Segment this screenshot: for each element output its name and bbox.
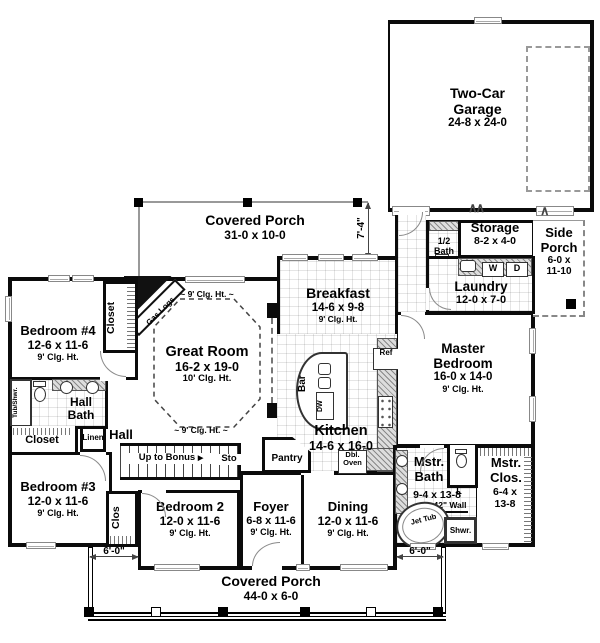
- washer: W: [482, 262, 504, 277]
- breakfast-window: [318, 254, 344, 261]
- porch-depth-dimension-line: [368, 203, 369, 259]
- stairs-storage-label: Sto: [217, 454, 241, 465]
- jet-tub-inner: [398, 503, 447, 547]
- shower-label: Shwr.: [447, 527, 474, 536]
- squiggle-icon: ~: [229, 289, 234, 299]
- foyer-name: Foyer: [240, 500, 302, 515]
- porch-top-name: Covered Porch: [155, 213, 355, 229]
- dining-clg: 9' Clg. Ht.: [302, 528, 394, 538]
- great-room-clg: 10' Clg. Ht.: [151, 374, 263, 385]
- bar-label: Bar: [297, 362, 313, 406]
- master-bedroom-clg: 9' Clg. Ht.: [414, 384, 512, 394]
- half-bath-vanity: [429, 221, 459, 231]
- garage-attic-dashed-outline: [526, 46, 590, 192]
- porch-top-label: Covered Porch 31-0 x 10-0: [155, 213, 355, 242]
- master-bedroom-window: [529, 396, 536, 422]
- floor-plan: Two-Car Garage 24-8 x 24-0 ∧∧ ∧ Covered …: [0, 0, 600, 643]
- porch-depth-dimension: 7'-4": [356, 208, 368, 248]
- breakfast-name: Breakfast: [288, 286, 388, 302]
- great-room-dims: 16-2 x 19-0: [151, 360, 263, 374]
- bedroom2-clg: 9' Clg. Ht.: [144, 528, 236, 538]
- bedroom3-clg: 9' Clg. Ht.: [12, 508, 104, 518]
- wall-opening: [252, 566, 282, 570]
- porch-post: [243, 198, 252, 207]
- ceiling-note-text: 9' Clg. Ht.: [182, 425, 221, 435]
- breakfast-dims: 14-6 x 9-8: [288, 302, 388, 315]
- washer-label: W: [483, 263, 503, 273]
- ceiling-note: ~ 9' Clg. Ht. ~: [156, 426, 246, 436]
- side-porch-post: [566, 299, 576, 309]
- refrigerator-label: Ref: [374, 349, 398, 358]
- porch-bottom-name: Covered Porch: [190, 574, 352, 590]
- bedroom3-window: [26, 542, 56, 549]
- bedroom3-closet-label: Closet: [10, 434, 74, 446]
- double-oven-label: Dbl. Oven: [339, 451, 366, 467]
- garage-window: [474, 17, 502, 24]
- dryer: D: [506, 262, 528, 277]
- squiggle-icon: ~: [174, 425, 179, 435]
- master-closet-label: Mstr. Clos.: [481, 456, 531, 485]
- porch-post: [134, 198, 143, 207]
- up-to-bonus-text: Up to Bonus: [139, 452, 195, 463]
- storage-name: Storage: [456, 221, 534, 236]
- wall-segment: [395, 215, 398, 261]
- tub-shower-label: Tub/Shwr.: [12, 381, 30, 425]
- porch-rail-bottom: [88, 612, 446, 621]
- stairs-up-label: Up to Bonus ▶: [128, 453, 214, 464]
- gas-logs-label: Gas Logs: [144, 295, 176, 327]
- master-bedroom-window: [529, 328, 536, 354]
- pantry-label: Pantry: [264, 453, 310, 464]
- squiggle-icon: ~: [223, 425, 228, 435]
- toilet-icon: [34, 387, 46, 402]
- porch-post: [218, 607, 228, 617]
- bedroom3-dims: 12-0 x 11-6: [12, 495, 104, 508]
- side-porch-label: Side Porch 6-0 x 11-10: [535, 226, 583, 277]
- door-swing-icon: ∧∧: [468, 200, 483, 216]
- bedroom4-dims: 12-6 x 11-6: [13, 339, 103, 352]
- kitchen-name: Kitchen: [292, 423, 390, 439]
- great-room-name: Great Room: [151, 344, 263, 360]
- cased-opening-dashed: [271, 318, 273, 403]
- breakfast-clg: 9' Clg. Ht.: [288, 315, 388, 325]
- column-post: [267, 403, 277, 418]
- porch-bottom-label: Covered Porch 44-0 x 6-0: [190, 574, 352, 603]
- foyer-label: Foyer 6-8 x 11-6 9' Clg. Ht.: [240, 500, 302, 537]
- foyer-dims: 6-8 x 11-6: [240, 515, 302, 527]
- great-room-label: Great Room 16-2 x 19-0 10' Clg. Ht.: [151, 344, 263, 385]
- garage-name: Two-Car Garage: [430, 86, 525, 117]
- dryer-label: D: [507, 263, 527, 273]
- breakfast-window: [282, 254, 308, 261]
- sink-icon: [60, 381, 73, 394]
- bedroom3-name: Bedroom #3: [12, 480, 104, 495]
- bedroom4-name: Bedroom #4: [13, 324, 103, 339]
- door-swing-icon: ∧: [540, 203, 548, 219]
- refrigerator: Ref: [373, 348, 399, 370]
- dishwasher: DW: [316, 392, 334, 420]
- double-oven: Dbl. Oven: [338, 450, 367, 474]
- master-closet-window: [482, 543, 509, 550]
- great-room-porch-door: [185, 276, 245, 283]
- storage-label: Storage 8-2 x 4-0: [456, 221, 534, 247]
- bedroom2-closet-label: Clos: [110, 498, 132, 538]
- bedroom2-window: [154, 564, 200, 571]
- master-closet-name: Mstr. Clos.: [481, 456, 531, 485]
- hall-bath-label: Hall Bath: [58, 396, 104, 423]
- island-sink: [318, 377, 331, 389]
- laundry-sink: [460, 260, 476, 272]
- island-sink: [318, 363, 331, 375]
- master-bedroom-dims: 16-0 x 14-0: [414, 371, 512, 384]
- porch-post: [300, 607, 310, 617]
- squiggle-icon: ~: [180, 289, 185, 299]
- master-bedroom-name: Master Bedroom: [414, 341, 512, 371]
- side-porch-name: Side Porch: [535, 226, 583, 255]
- closet-rod-hatch: [127, 286, 135, 348]
- breakfast-label: Breakfast 14-6 x 9-8 9' Clg. Ht.: [288, 286, 388, 324]
- porch-post: [151, 607, 161, 617]
- ceiling-note-text: 9' Clg. Ht.: [188, 289, 227, 299]
- hall-label: Hall: [102, 428, 140, 443]
- tub-shower: Tub/Shwr.: [10, 379, 32, 427]
- bedroom3-label: Bedroom #3 12-0 x 11-6 9' Clg. Ht.: [12, 480, 104, 518]
- offset-dimension-right: 6'-0": [396, 546, 444, 557]
- dining-name: Dining: [302, 500, 394, 515]
- bedroom4-window: [48, 275, 70, 282]
- bedroom4-window: [5, 296, 12, 322]
- shower: Shwr.: [444, 517, 477, 544]
- dining-label: Dining 12-0 x 11-6 9' Clg. Ht.: [302, 500, 394, 538]
- dining-dims: 12-0 x 11-6: [302, 515, 394, 528]
- sink-icon: [86, 381, 99, 394]
- porch-bottom-dims: 44-0 x 6-0: [190, 590, 352, 603]
- garage-label: Two-Car Garage 24-8 x 24-0: [430, 86, 525, 130]
- porch-post: [366, 607, 376, 617]
- garage-dims: 24-8 x 24-0: [430, 117, 525, 130]
- offset-dimension-left: 6'-0": [90, 546, 138, 557]
- master-bedroom-label: Master Bedroom 16-0 x 14-0 9' Clg. Ht.: [414, 341, 512, 394]
- column-post: [267, 303, 277, 318]
- bedroom4-label: Bedroom #4 12-6 x 11-6 9' Clg. Ht.: [13, 324, 103, 362]
- foyer-sidelight: [296, 564, 310, 571]
- storage-dims: 8-2 x 4-0: [456, 236, 534, 248]
- arrow-right-icon: ▶: [198, 455, 203, 462]
- side-porch-dims: 6-0 x 11-10: [542, 255, 576, 277]
- porch-top-dims: 31-0 x 10-0: [155, 229, 355, 242]
- wall-opening: [100, 377, 126, 381]
- ceiling-note: ~ 9' Clg. Ht. ~: [162, 290, 252, 300]
- breakfast-window: [352, 254, 378, 261]
- porch-post: [353, 198, 362, 207]
- bedroom4-closet-label: Closet: [105, 290, 125, 346]
- foyer-clg: 9' Clg. Ht.: [240, 527, 302, 537]
- dining-window: [340, 564, 388, 571]
- master-closet-dims: 6-4 x 13-8: [489, 487, 521, 511]
- bedroom4-window: [72, 275, 94, 282]
- dishwasher-label: DW: [317, 393, 333, 419]
- porch-post: [433, 607, 443, 617]
- bedroom4-clg: 9' Clg. Ht.: [13, 352, 103, 362]
- porch-post: [84, 607, 94, 617]
